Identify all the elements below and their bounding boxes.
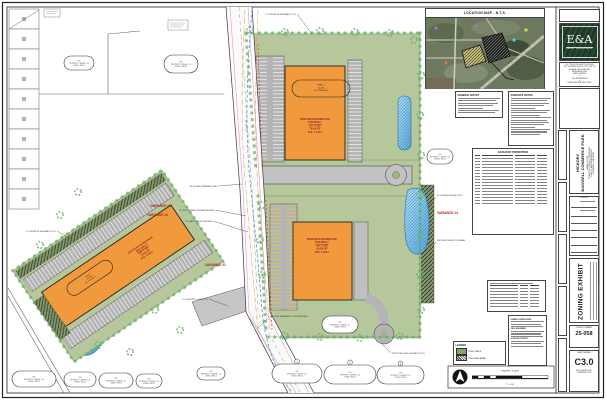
- tree-icon: [37, 242, 43, 248]
- revision-row: [571, 231, 597, 238]
- table-cell: [490, 285, 518, 286]
- table-cell: [537, 194, 547, 195]
- table-cell: [475, 179, 480, 180]
- table-cell: [537, 203, 547, 204]
- table-cell: [475, 188, 480, 189]
- text-line: [511, 131, 547, 132]
- table-cell: [482, 191, 513, 192]
- table-cell: [515, 182, 536, 183]
- owner-label-oval: N/FPROPERTY OWNER, LLCZONED: RES-32: [324, 360, 376, 384]
- svg-text:VARIANCE #4: VARIANCE #4: [437, 211, 458, 215]
- seal-box: [558, 182, 567, 232]
- sheet-title-box: ZONING EXHIBIT: [569, 258, 599, 323]
- table-cell: [537, 185, 547, 186]
- table-cell: [520, 300, 529, 301]
- table-row: [475, 173, 552, 174]
- table-cell: [537, 155, 547, 156]
- table-cell: [490, 300, 518, 301]
- text-line: [511, 100, 548, 101]
- table-cell: [520, 285, 529, 286]
- table-cell: [537, 167, 547, 168]
- table-cell: [515, 155, 536, 156]
- text-line: [511, 120, 548, 121]
- parcel-oval-line: EX. ZONING: A1: [314, 89, 327, 92]
- owner-label-line: ZONED: RES-3: [344, 377, 356, 379]
- table-cell: [520, 297, 529, 298]
- text-line: [458, 105, 493, 106]
- scale-label: GRAPHIC SCALE: [501, 370, 519, 373]
- table-cell: [537, 170, 547, 171]
- owner-label-oval: N/FPROPERTY OWNER, LLCZONED: RES-3: [322, 316, 358, 333]
- table-cell: [482, 185, 513, 186]
- owner-label-oval: N/FPROPERTY OWNER, LLCZONED: RES-3: [64, 372, 96, 387]
- legend-box: LEGEND OPEN SPACE TREE SAVE AREA: [453, 341, 506, 365]
- text-line: [458, 103, 499, 104]
- owner-label-line: ZONED: RES-3: [175, 66, 187, 68]
- text-line: [511, 336, 543, 337]
- location-map-title: LOCATION MAP - N.T.S.: [464, 11, 506, 15]
- text-line: [511, 333, 542, 334]
- title-strip-spacer: [559, 88, 600, 129]
- table-cell: [537, 197, 547, 198]
- table-cell: [537, 158, 547, 159]
- firm-logo: E&A EBERLY & ASSOCIATES: [559, 23, 600, 61]
- table-cell: [475, 182, 480, 183]
- lot-cell: [9, 109, 39, 129]
- table-cell: [482, 161, 513, 162]
- table-cell: [490, 291, 518, 292]
- revision-row: [571, 217, 597, 224]
- firm-contact: TEL 770.452.7849 FAX 770.452.3086 2951 F…: [559, 62, 600, 87]
- table-cell: [520, 303, 529, 304]
- owner-label-oval: N/FPROPERTY OWNER, LLCZONED: RES-3: [12, 371, 56, 387]
- text-line: [511, 324, 542, 325]
- svg-text:20' ZONING BUFFER (TYP.): 20' ZONING BUFFER (TYP.): [437, 195, 463, 197]
- text-line: [511, 346, 543, 347]
- table-cell: [515, 170, 536, 171]
- text-line: [458, 112, 496, 113]
- owner-label-line: ZONED: RES-3: [143, 383, 155, 385]
- project-title-box: HICKORY BAGWELL COMMERCE PARK LAND LOT 8…: [569, 130, 599, 194]
- text-line: [511, 117, 551, 118]
- table-cell: [515, 161, 536, 162]
- location-map-aerial: [426, 18, 544, 89]
- tree-save-swatch: [456, 355, 467, 362]
- tree-icon: [127, 349, 133, 355]
- general-notes-title: GENERAL NOTES: [458, 94, 501, 97]
- table-cell: [530, 294, 539, 295]
- table-cell: [530, 300, 539, 301]
- north-scale-box: GRAPHIC SCALE 1" = 100': [448, 366, 554, 388]
- lot-cell: [9, 69, 39, 89]
- revision-row: [571, 246, 597, 253]
- project-number-box: PROJECT NUMBER 25-058: [569, 325, 599, 348]
- owner-label-oval: N/FPROPERTY OWNER, LLCZONED: RES-3: [136, 374, 162, 388]
- general-notes: GENERAL NOTES: [455, 91, 503, 118]
- table-cell: [482, 155, 513, 156]
- parcel-oval-line: ±12.4 AC: [317, 86, 325, 89]
- table-cell: [482, 200, 513, 201]
- revisions-table: REVISIONS: [569, 196, 599, 256]
- svg-text:VARIANCE #2: VARIANCE #2: [150, 204, 171, 208]
- text-line: [511, 343, 542, 344]
- table-cell: [490, 297, 518, 298]
- project-number: 25-058: [570, 331, 598, 337]
- table-cell: [515, 188, 536, 189]
- text-line: [511, 103, 550, 104]
- table-cell: [520, 288, 529, 289]
- firm-service: LANDSCAPE ARCHITECTURE: [560, 82, 599, 84]
- table-cell: [475, 158, 480, 159]
- svg-text:6" CONCRETE CURB (TYP.): 6" CONCRETE CURB (TYP.): [182, 299, 208, 301]
- text-line: [511, 326, 543, 327]
- text-line: [458, 100, 497, 101]
- table-cell: [530, 288, 539, 289]
- project-number-label: PROJECT NUMBER: [570, 327, 598, 329]
- table-row: [475, 155, 552, 156]
- table-cell: [537, 191, 547, 192]
- lot-cell: [9, 49, 39, 69]
- svg-text:6" CONCRETE SIDEWALK (TYP.): 6" CONCRETE SIDEWALK (TYP.): [266, 13, 297, 16]
- table-cell: [482, 179, 513, 180]
- open-space-swatch: [456, 348, 467, 355]
- text-line: [511, 134, 541, 135]
- table-row: [475, 158, 552, 159]
- parking-summary-rows: [490, 285, 544, 307]
- adjacent-properties-rows: [475, 155, 552, 204]
- table-cell: [515, 200, 536, 201]
- title-strip-spacer: [559, 9, 600, 22]
- table-cell: [530, 306, 539, 307]
- table-row: [490, 306, 544, 307]
- table-cell: [515, 167, 536, 168]
- table-row: [475, 185, 552, 186]
- legend-tree-save: TREE SAVE AREA: [468, 358, 486, 360]
- variance-notes-title: VARIANCE NOTES: [511, 94, 552, 97]
- svg-text:PROPOSED RETAINING WALL: PROPOSED RETAINING WALL: [189, 185, 218, 188]
- text-line: [511, 112, 547, 113]
- lot-cell: [9, 89, 39, 109]
- table-cell: [537, 164, 547, 165]
- svg-text:VARIANCE #3: VARIANCE #3: [147, 213, 168, 217]
- table-row: [475, 182, 552, 183]
- table-cell: [537, 182, 547, 183]
- table-row: [475, 176, 552, 177]
- table-cell: [537, 161, 547, 162]
- lot-cell: [9, 189, 39, 209]
- site-data-contact: 24 HOUR CONTACT:: [511, 338, 545, 340]
- variance-notes: VARIANCE NOTES: [508, 91, 554, 146]
- revision-row: [571, 201, 597, 208]
- variance-notes-body: [511, 98, 552, 135]
- table-cell: [530, 291, 539, 292]
- text-line: [511, 129, 551, 130]
- revision-row: [571, 210, 597, 217]
- table-cell: [515, 203, 536, 204]
- table-row: [490, 297, 544, 298]
- table-cell: [475, 155, 480, 156]
- text-line: [511, 115, 541, 116]
- project-address: CUMMING, GA 30040: [593, 152, 595, 174]
- table-cell: [520, 294, 529, 295]
- sheet-number-label: SHEET NUMBER: [570, 352, 598, 354]
- revision-row: [571, 224, 597, 231]
- table-cell: [515, 173, 536, 174]
- table-cell: [482, 182, 513, 183]
- table-row: [475, 197, 552, 198]
- firm-logo-text: E&A: [567, 34, 593, 46]
- table-cell: [515, 176, 536, 177]
- table-cell: [520, 291, 529, 292]
- svg-text:VARIANCE #1: VARIANCE #1: [205, 263, 226, 267]
- table-cell: [475, 203, 480, 204]
- table-cell: [482, 188, 513, 189]
- table-row: [475, 179, 552, 180]
- location-map: LOCATION MAP - N.T.S.: [425, 8, 545, 89]
- sheet-number: C3.0: [570, 357, 598, 367]
- table-cell: [515, 179, 536, 180]
- text-line: [511, 331, 544, 332]
- copyright-note: © 2025 EBERLY & ASSOCIATES, INC. ALL RIG…: [600, 150, 604, 330]
- table-cell: [490, 303, 518, 304]
- table-cell: [482, 197, 513, 198]
- owner-label-line: ZONED: RES-3: [73, 65, 85, 67]
- table-row: [475, 194, 552, 195]
- table-row: [475, 161, 552, 162]
- owner-label-line: ZONED: RES-3: [28, 381, 40, 383]
- table-cell: [490, 294, 518, 295]
- table-cell: [537, 188, 547, 189]
- owner-label-line: ZONED: RES-3: [291, 376, 303, 378]
- owner-label-line: ZONED: RES-3: [395, 377, 407, 379]
- table-cell: [482, 167, 513, 168]
- table-cell: [482, 170, 513, 171]
- seal-box: [558, 130, 567, 180]
- table-cell: [482, 194, 513, 195]
- svg-text:5' CONCRETE SIDEWALK (TYP.): 5' CONCRETE SIDEWALK (TYP.): [26, 230, 56, 233]
- table-row: [490, 300, 544, 301]
- legend-title: LEGEND: [456, 344, 504, 347]
- owner-label-oval: N/FPROPERTY OWNER, LLCZONED: RES-33: [377, 361, 424, 384]
- table-row: [475, 167, 552, 168]
- table-cell: [537, 179, 547, 180]
- zoning-exhibit-sheet: TRACT 1 ±12.4 AC EX. ZONING: A1 PROPOSED…: [0, 0, 606, 400]
- svg-text:50' UNDISTURBED STREAM BUFFER: 50' UNDISTURBED STREAM BUFFER: [179, 209, 215, 212]
- general-notes-body: [458, 98, 501, 113]
- table-row: [475, 200, 552, 201]
- issue-note: CONSTRUCTION: [570, 372, 598, 374]
- firm-name: EBERLY & ASSOCIATES: [566, 47, 592, 51]
- text-line: [511, 122, 550, 123]
- owner-label-line: ZONED: RES-3: [74, 382, 86, 384]
- table-cell: [475, 170, 480, 171]
- table-row: [490, 285, 544, 286]
- table-cell: [482, 158, 513, 159]
- table-row: [475, 203, 552, 204]
- text-line: [458, 98, 500, 99]
- table-cell: [482, 173, 513, 174]
- table-cell: [475, 194, 480, 195]
- site-data-owner: OWNER / DEVELOPER:: [511, 319, 545, 321]
- table-cell: [475, 164, 480, 165]
- table-cell: [475, 185, 480, 186]
- parking-summary-table: [487, 280, 546, 312]
- table-row: [490, 294, 544, 295]
- table-cell: [537, 176, 547, 177]
- adjacent-lot-strip: [9, 9, 39, 209]
- text-line: [511, 110, 551, 111]
- scale-ratio: 1" = 100': [506, 384, 514, 386]
- adjacent-properties-table: ADJACENT PROPERTIES: [472, 148, 554, 235]
- revisions-label: REVISIONS: [571, 198, 597, 199]
- owner-label-oval: N/FPROPERTY OWNER, LLCZONED: RES-3: [64, 56, 94, 70]
- table-cell: [475, 161, 480, 162]
- table-cell: [537, 200, 547, 201]
- parcel-oval-line: TRACT 1: [317, 84, 324, 87]
- text-line: [511, 98, 551, 99]
- svg-text:FFE: 1,094.0: FFE: 1,094.0: [315, 251, 330, 254]
- table-cell: [515, 197, 536, 198]
- text-line: [511, 321, 544, 322]
- sheet-title: ZONING EXHIBIT: [578, 263, 585, 320]
- table-cell: [475, 197, 480, 198]
- table-row: [475, 164, 552, 165]
- table-cell: [537, 173, 547, 174]
- site-data-box: OWNER / DEVELOPER: CIVIL ENGINEER: 24 HO…: [508, 315, 547, 366]
- seal-box: [558, 338, 567, 392]
- table-cell: [475, 167, 480, 168]
- tree-icon: [177, 327, 183, 333]
- tree-icon: [57, 212, 63, 218]
- text-line: [511, 108, 536, 109]
- project-name-2: BAGWELL COMMERCE PARK: [580, 134, 585, 191]
- text-line: [458, 110, 500, 111]
- building-2: [293, 222, 352, 300]
- adjacent-properties-title: ADJACENT PROPERTIES: [475, 151, 552, 154]
- table-cell: [475, 176, 480, 177]
- table-cell: [515, 194, 536, 195]
- seal-box: [558, 234, 567, 284]
- lot-cell: [9, 169, 39, 189]
- owner-label-oval: N/FPROPERTY OWNER, LLCZONED: RES-3: [427, 149, 453, 164]
- owner-label-line: ZONED: RES-3: [434, 159, 446, 161]
- site-data-engineer: CIVIL ENGINEER:: [511, 328, 545, 330]
- table-row: [490, 303, 544, 304]
- sheet-number-box: SHEET NUMBER C3.0 NOT ISSUED FOR CONSTRU…: [569, 350, 599, 392]
- table-cell: [530, 297, 539, 298]
- table-row: [490, 288, 544, 289]
- table-cell: [530, 303, 539, 304]
- table-cell: [530, 285, 539, 286]
- text-line: [511, 124, 545, 125]
- legend-open-space: OPEN SPACE: [468, 351, 481, 353]
- owner-label-line: ZONED: RES-3: [334, 327, 346, 329]
- svg-text:PROPOSED FIRE HYDRANT (TYP.): PROPOSED FIRE HYDRANT (TYP.): [392, 352, 425, 355]
- parcel-3: TRACT 1 ±12.4 AC EX. ZONING: A1 PROPOSED…: [13, 170, 224, 362]
- svg-text:25' STATE WATERS BUFFER: 25' STATE WATERS BUFFER: [185, 220, 212, 223]
- svg-text:EXISTING TREES TO REMAIN: EXISTING TREES TO REMAIN: [437, 239, 466, 242]
- lot-cell: [9, 29, 39, 49]
- owner-label-oval: N/FPROPERTY OWNER, LLCZONED: RES-3: [164, 55, 198, 73]
- table-row: [490, 291, 544, 292]
- table-cell: [515, 158, 536, 159]
- table-cell: [490, 288, 518, 289]
- svg-text:FFE: 1,100.0: FFE: 1,100.0: [308, 131, 323, 134]
- revision-row: [571, 238, 597, 245]
- text-line: [511, 127, 536, 128]
- tree-icon: [75, 189, 81, 195]
- owner-label-line: ZONED: RES-3: [205, 376, 217, 378]
- table-cell: [475, 191, 480, 192]
- text-line: [511, 341, 544, 342]
- text-line: [511, 105, 545, 106]
- table-cell: [482, 164, 513, 165]
- table-cell: [520, 306, 529, 307]
- table-row: [475, 191, 552, 192]
- owner-label-line: ZONED: RES-3: [110, 383, 122, 385]
- table-cell: [475, 173, 480, 174]
- seal-box: [558, 286, 567, 336]
- table-cell: [515, 185, 536, 186]
- table-row: [475, 188, 552, 189]
- table-cell: [515, 191, 536, 192]
- lot-cell: [9, 149, 39, 169]
- lot-cell: [9, 129, 39, 149]
- table-row: [475, 170, 552, 171]
- text-line: [458, 108, 484, 109]
- owner-label-oval: N/FPROPERTY OWNER, LLCZONED: RES-3: [197, 367, 225, 380]
- table-cell: [515, 164, 536, 165]
- table-cell: [482, 176, 513, 177]
- owner-label-oval: N/FPROPERTY OWNER, LLCZONED: RES-3: [99, 373, 133, 388]
- table-cell: [475, 200, 480, 201]
- svg-text:EXISTING PAVEMENT TO BE REMOVE: EXISTING PAVEMENT TO BE REMOVED: [270, 315, 308, 318]
- table-cell: [490, 306, 518, 307]
- table-cell: [482, 203, 513, 204]
